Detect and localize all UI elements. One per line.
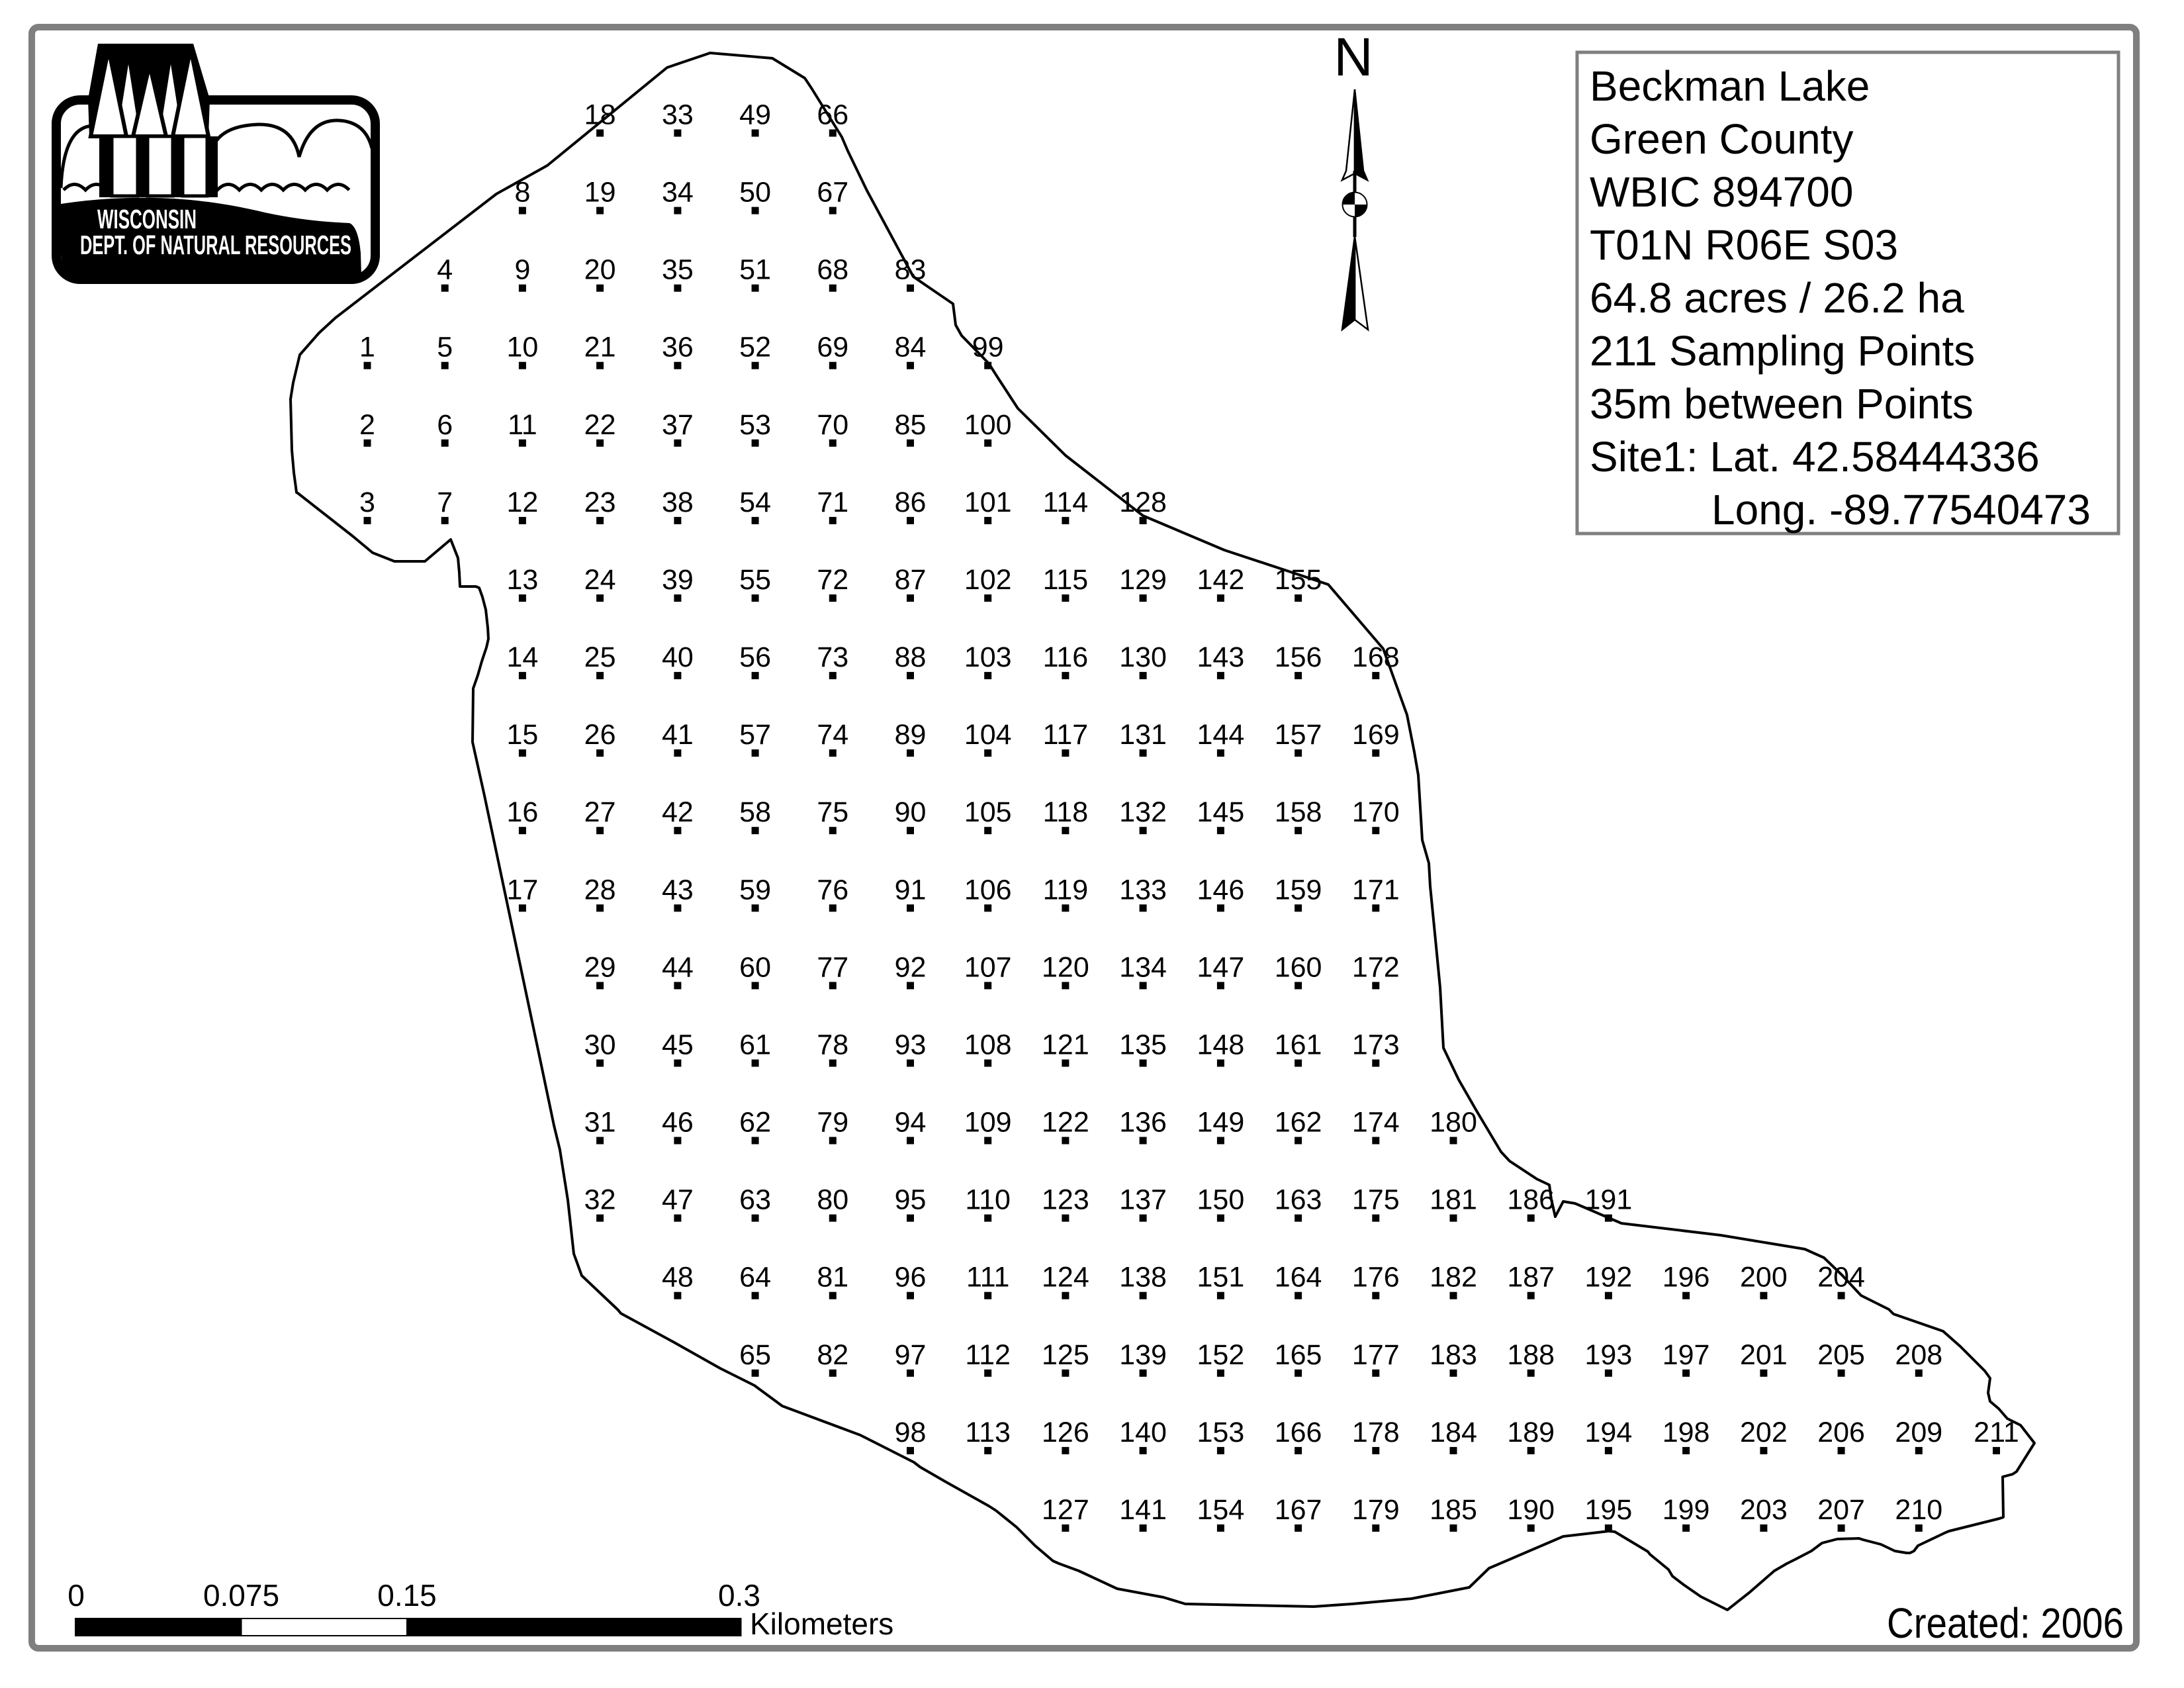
svg-text:13: 13 [506,564,538,596]
svg-text:0: 0 [68,1578,85,1613]
svg-text:166: 166 [1275,1417,1322,1448]
svg-text:207: 207 [1817,1494,1865,1526]
svg-text:161: 161 [1275,1029,1322,1061]
svg-text:Long. -89.77540473: Long. -89.77540473 [1711,486,2091,534]
svg-text:27: 27 [584,796,616,828]
svg-text:73: 73 [817,641,848,673]
svg-text:38: 38 [662,487,694,518]
svg-text:140: 140 [1119,1417,1167,1448]
svg-text:T01N R06E S03: T01N R06E S03 [1590,221,1898,269]
svg-text:60: 60 [739,951,771,983]
svg-text:180: 180 [1430,1107,1477,1139]
svg-text:132: 132 [1119,796,1167,828]
svg-text:DEPT. OF NATURAL RESOURCES: DEPT. OF NATURAL RESOURCES [80,230,351,260]
svg-text:48: 48 [662,1262,694,1293]
svg-text:59: 59 [739,874,771,906]
svg-text:47: 47 [662,1184,694,1216]
svg-text:2: 2 [359,409,375,441]
svg-text:39: 39 [662,564,694,596]
svg-text:183: 183 [1430,1339,1477,1371]
svg-text:N: N [1334,27,1373,87]
svg-text:195: 195 [1585,1494,1633,1526]
svg-text:163: 163 [1275,1184,1322,1216]
svg-text:49: 49 [739,99,771,131]
svg-text:76: 76 [817,874,848,906]
svg-text:WBIC 894700: WBIC 894700 [1590,168,1853,216]
svg-text:56: 56 [739,641,771,673]
svg-text:21: 21 [584,332,616,363]
svg-text:92: 92 [895,951,927,983]
svg-text:152: 152 [1197,1339,1245,1371]
svg-text:148: 148 [1197,1029,1245,1061]
svg-text:156: 156 [1275,641,1322,673]
svg-text:50: 50 [739,177,771,209]
svg-text:37: 37 [662,409,694,441]
svg-text:119: 119 [1043,874,1089,906]
svg-text:26: 26 [584,719,616,751]
svg-text:91: 91 [895,874,927,906]
svg-text:149: 149 [1197,1107,1245,1139]
svg-text:173: 173 [1352,1029,1400,1061]
svg-text:114: 114 [1043,487,1089,518]
svg-text:70: 70 [817,409,848,441]
svg-text:128: 128 [1119,487,1167,518]
svg-text:8: 8 [514,177,530,209]
svg-text:80: 80 [817,1184,848,1216]
svg-text:0.075: 0.075 [203,1578,279,1613]
svg-text:188: 188 [1507,1339,1555,1371]
svg-text:112: 112 [965,1339,1011,1371]
svg-text:209: 209 [1895,1417,1942,1448]
svg-text:77: 77 [817,951,848,983]
svg-text:170: 170 [1352,796,1400,828]
svg-text:83: 83 [895,254,927,286]
svg-text:7: 7 [437,487,453,518]
svg-text:9: 9 [514,254,530,286]
svg-text:117: 117 [1043,719,1089,751]
svg-text:159: 159 [1275,874,1322,906]
svg-text:178: 178 [1352,1417,1400,1448]
svg-text:36: 36 [662,332,694,363]
svg-text:18: 18 [584,99,616,131]
svg-text:105: 105 [964,796,1012,828]
svg-text:116: 116 [1043,641,1089,673]
svg-text:88: 88 [895,641,927,673]
svg-text:157: 157 [1275,719,1322,751]
svg-text:107: 107 [964,951,1012,983]
svg-text:35m between Points: 35m between Points [1590,380,1974,428]
svg-text:182: 182 [1430,1262,1477,1293]
svg-text:75: 75 [817,796,848,828]
svg-text:191: 191 [1585,1184,1633,1216]
svg-text:41: 41 [662,719,694,751]
svg-text:175: 175 [1352,1184,1400,1216]
svg-text:139: 139 [1119,1339,1167,1371]
svg-text:19: 19 [584,177,616,209]
svg-text:85: 85 [895,409,927,441]
svg-text:203: 203 [1740,1494,1788,1526]
svg-text:54: 54 [739,487,771,518]
svg-text:6: 6 [437,409,453,441]
svg-text:68: 68 [817,254,848,286]
svg-text:120: 120 [1042,951,1089,983]
svg-text:96: 96 [895,1262,927,1293]
svg-text:90: 90 [895,796,927,828]
svg-text:211: 211 [1974,1417,2019,1448]
svg-text:143: 143 [1197,641,1245,673]
svg-text:111: 111 [966,1262,1009,1293]
svg-text:205: 205 [1817,1339,1865,1371]
svg-text:78: 78 [817,1029,848,1061]
svg-text:31: 31 [584,1107,616,1139]
svg-text:110: 110 [965,1184,1011,1216]
svg-text:0.15: 0.15 [377,1578,437,1613]
svg-text:165: 165 [1275,1339,1322,1371]
svg-text:136: 136 [1119,1107,1167,1139]
svg-text:122: 122 [1042,1107,1089,1139]
svg-text:79: 79 [817,1107,848,1139]
svg-text:138: 138 [1119,1262,1167,1293]
svg-text:1: 1 [359,332,375,363]
svg-text:189: 189 [1507,1417,1555,1448]
svg-text:104: 104 [964,719,1012,751]
svg-text:201: 201 [1740,1339,1788,1371]
svg-text:86: 86 [895,487,927,518]
svg-text:34: 34 [662,177,694,209]
svg-text:62: 62 [739,1107,771,1139]
svg-text:51: 51 [739,254,771,286]
svg-text:204: 204 [1817,1262,1865,1293]
svg-text:160: 160 [1275,951,1322,983]
svg-text:71: 71 [817,487,848,518]
svg-text:150: 150 [1197,1184,1245,1216]
svg-text:15: 15 [506,719,538,751]
svg-text:25: 25 [584,641,616,673]
svg-text:69: 69 [817,332,848,363]
svg-text:184: 184 [1430,1417,1477,1448]
svg-text:64: 64 [739,1262,771,1293]
svg-text:129: 129 [1119,564,1167,596]
svg-text:186: 186 [1507,1184,1555,1216]
svg-text:101: 101 [964,487,1012,518]
svg-text:40: 40 [662,641,694,673]
svg-text:131: 131 [1119,719,1167,751]
svg-text:208: 208 [1895,1339,1942,1371]
svg-text:154: 154 [1197,1494,1245,1526]
svg-text:55: 55 [739,564,771,596]
svg-text:109: 109 [964,1107,1012,1139]
svg-text:16: 16 [506,796,538,828]
svg-text:98: 98 [895,1417,927,1448]
svg-text:127: 127 [1042,1494,1089,1526]
svg-text:66: 66 [817,99,848,131]
svg-text:30: 30 [584,1029,616,1061]
svg-text:46: 46 [662,1107,694,1139]
svg-text:193: 193 [1585,1339,1633,1371]
svg-text:11: 11 [508,409,537,441]
svg-text:168: 168 [1352,641,1400,673]
svg-text:187: 187 [1507,1262,1555,1293]
svg-text:176: 176 [1352,1262,1400,1293]
svg-text:146: 146 [1197,874,1245,906]
svg-text:145: 145 [1197,796,1245,828]
svg-text:147: 147 [1197,951,1245,983]
svg-text:57: 57 [739,719,771,751]
svg-text:169: 169 [1352,719,1400,751]
svg-text:124: 124 [1042,1262,1089,1293]
svg-text:14: 14 [506,641,538,673]
svg-text:65: 65 [739,1339,771,1371]
svg-text:32: 32 [584,1184,616,1216]
svg-text:121: 121 [1042,1029,1089,1061]
svg-text:53: 53 [739,409,771,441]
svg-text:84: 84 [895,332,927,363]
svg-text:200: 200 [1740,1262,1788,1293]
svg-text:174: 174 [1352,1107,1400,1139]
svg-text:64.8 acres / 26.2 ha: 64.8 acres / 26.2 ha [1590,274,1964,322]
svg-text:29: 29 [584,951,616,983]
svg-text:24: 24 [584,564,616,596]
svg-text:135: 135 [1119,1029,1167,1061]
svg-text:113: 113 [965,1417,1011,1448]
svg-text:142: 142 [1197,564,1245,596]
svg-text:123: 123 [1042,1184,1089,1216]
svg-text:72: 72 [817,564,848,596]
svg-text:179: 179 [1352,1494,1400,1526]
svg-text:Site1: Lat. 42.58444336: Site1: Lat. 42.58444336 [1590,433,2040,481]
svg-text:185: 185 [1430,1494,1477,1526]
svg-text:12: 12 [506,487,538,518]
svg-text:144: 144 [1197,719,1245,751]
svg-text:44: 44 [662,951,694,983]
svg-text:82: 82 [817,1339,848,1371]
svg-text:20: 20 [584,254,616,286]
svg-text:61: 61 [739,1029,771,1061]
svg-text:126: 126 [1042,1417,1089,1448]
svg-text:202: 202 [1740,1417,1788,1448]
svg-text:22: 22 [584,409,616,441]
svg-text:103: 103 [964,641,1012,673]
svg-text:130: 130 [1119,641,1167,673]
svg-text:17: 17 [506,874,538,906]
svg-text:153: 153 [1197,1417,1245,1448]
svg-text:172: 172 [1352,951,1400,983]
svg-text:Kilometers: Kilometers [750,1607,893,1641]
svg-text:100: 100 [964,409,1012,441]
svg-text:151: 151 [1197,1262,1245,1293]
svg-text:192: 192 [1585,1262,1633,1293]
svg-text:167: 167 [1275,1494,1322,1526]
svg-text:118: 118 [1043,796,1089,828]
svg-text:87: 87 [895,564,927,596]
svg-text:74: 74 [817,719,848,751]
svg-text:97: 97 [895,1339,927,1371]
svg-text:108: 108 [964,1029,1012,1061]
svg-text:181: 181 [1430,1184,1477,1216]
svg-text:63: 63 [739,1184,771,1216]
svg-text:102: 102 [964,564,1012,596]
svg-text:93: 93 [895,1029,927,1061]
svg-text:35: 35 [662,254,694,286]
svg-text:81: 81 [817,1262,848,1293]
svg-text:158: 158 [1275,796,1322,828]
svg-text:194: 194 [1585,1417,1633,1448]
svg-text:134: 134 [1119,951,1167,983]
svg-text:164: 164 [1275,1262,1322,1293]
svg-text:52: 52 [739,332,771,363]
svg-text:45: 45 [662,1029,694,1061]
svg-text:67: 67 [817,177,848,209]
svg-text:197: 197 [1662,1339,1710,1371]
svg-text:125: 125 [1042,1339,1089,1371]
svg-text:211 Sampling Points: 211 Sampling Points [1590,327,1975,375]
svg-text:58: 58 [739,796,771,828]
svg-text:28: 28 [584,874,616,906]
svg-text:10: 10 [506,332,538,363]
svg-text:3: 3 [359,487,375,518]
svg-text:210: 210 [1895,1494,1942,1526]
svg-text:23: 23 [584,487,616,518]
svg-text:99: 99 [972,332,1004,363]
svg-text:33: 33 [662,99,694,131]
svg-text:43: 43 [662,874,694,906]
svg-text:115: 115 [1043,564,1089,596]
svg-text:190: 190 [1507,1494,1555,1526]
svg-text:4: 4 [437,254,453,286]
svg-text:199: 199 [1662,1494,1710,1526]
svg-text:133: 133 [1119,874,1167,906]
svg-text:206: 206 [1817,1417,1865,1448]
svg-text:137: 137 [1119,1184,1167,1216]
svg-text:Beckman Lake: Beckman Lake [1590,62,1870,110]
svg-text:94: 94 [895,1107,927,1139]
svg-text:177: 177 [1352,1339,1400,1371]
svg-text:42: 42 [662,796,694,828]
svg-text:141: 141 [1119,1494,1167,1526]
svg-text:196: 196 [1662,1262,1710,1293]
svg-text:171: 171 [1352,874,1400,906]
svg-text:198: 198 [1662,1417,1710,1448]
svg-text:5: 5 [437,332,453,363]
svg-text:Created: 2006: Created: 2006 [1887,1599,2124,1647]
svg-text:106: 106 [964,874,1012,906]
svg-text:162: 162 [1275,1107,1322,1139]
svg-text:Green County: Green County [1590,115,1853,163]
svg-text:155: 155 [1275,564,1322,596]
svg-text:89: 89 [895,719,927,751]
svg-text:95: 95 [895,1184,927,1216]
